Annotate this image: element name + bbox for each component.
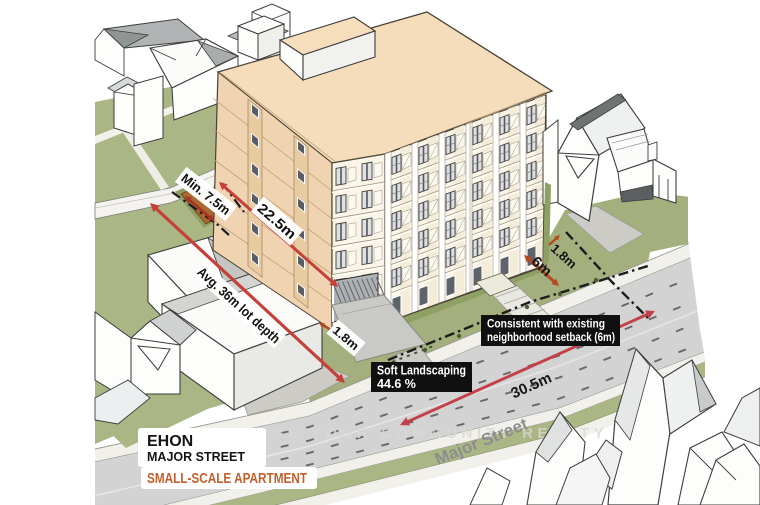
svg-text:neighborhood setback (6m): neighborhood setback (6m)	[487, 330, 615, 344]
svg-text:Consistent with existing: Consistent with existing	[487, 317, 605, 331]
svg-text:Soft Landscaping: Soft Landscaping	[377, 364, 466, 378]
svg-text:EHON: EHON	[147, 433, 193, 450]
svg-text:SMALL-SCALE APARTMENT: SMALL-SCALE APARTMENT	[147, 471, 307, 487]
svg-text:MAJOR STREET: MAJOR STREET	[147, 450, 245, 464]
svg-text:44.6 %: 44.6 %	[377, 377, 416, 391]
